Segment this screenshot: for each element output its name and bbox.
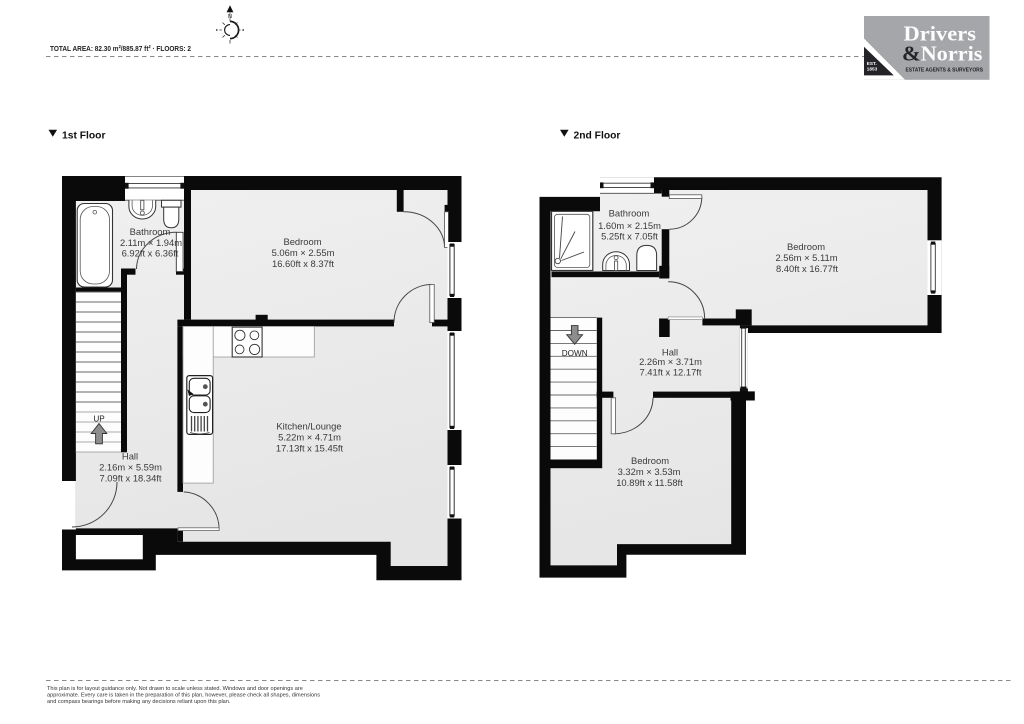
- svg-text:Kitchen/Lounge: Kitchen/Lounge: [276, 421, 341, 432]
- svg-text:5.25ft x 7.05ft: 5.25ft x 7.05ft: [601, 230, 658, 241]
- svg-text:6.92ft x 6.36ft: 6.92ft x 6.36ft: [122, 247, 179, 258]
- svg-text:1.60m × 2.15m: 1.60m × 2.15m: [598, 220, 661, 231]
- svg-text:approximate. Every care is tak: approximate. Every care is taken in the …: [47, 693, 320, 699]
- svg-text:17.13ft x 15.45ft: 17.13ft x 15.45ft: [276, 442, 344, 453]
- svg-text:Bathroom: Bathroom: [130, 226, 171, 237]
- svg-text:8.40ft x 16.77ft: 8.40ft x 16.77ft: [776, 263, 838, 274]
- svg-text:3.32m × 3.53m: 3.32m × 3.53m: [618, 466, 681, 477]
- svg-text:This plan is for layout guidan: This plan is for layout guidance only. N…: [47, 686, 303, 692]
- svg-text:16.60ft x 8.37ft: 16.60ft x 8.37ft: [272, 258, 334, 269]
- svg-text:2nd Floor: 2nd Floor: [574, 130, 621, 141]
- svg-text:N: N: [228, 14, 232, 20]
- svg-text:&Norris: &Norris: [902, 42, 983, 66]
- svg-text:7.41ft x 12.17ft: 7.41ft x 12.17ft: [639, 366, 701, 377]
- svg-text:2.11m × 1.94m: 2.11m × 1.94m: [120, 237, 182, 248]
- svg-text:TOTAL AREA: 82.30 m²/885.87 ft: TOTAL AREA: 82.30 m²/885.87 ft² · FLOORS…: [50, 44, 191, 53]
- svg-text:Bathroom: Bathroom: [609, 207, 650, 218]
- svg-text:and compass bearings before ma: and compass bearings before making any d…: [47, 699, 231, 705]
- svg-text:10.89ft x 11.58ft: 10.89ft x 11.58ft: [616, 477, 683, 488]
- svg-text:5.06m × 2.55m: 5.06m × 2.55m: [272, 247, 335, 258]
- svg-text:DOWN: DOWN: [562, 349, 588, 358]
- svg-text:ESTATE AGENTS & SURVEYORS: ESTATE AGENTS & SURVEYORS: [906, 67, 984, 73]
- svg-text:2.26m × 3.71m: 2.26m × 3.71m: [639, 356, 702, 367]
- svg-text:Bedroom: Bedroom: [631, 455, 669, 466]
- svg-text:Bedroom: Bedroom: [283, 236, 321, 247]
- svg-text:2.16m × 5.59m: 2.16m × 5.59m: [99, 462, 162, 473]
- svg-text:1853: 1853: [867, 67, 878, 72]
- svg-text:Bedroom: Bedroom: [787, 241, 825, 252]
- svg-text:5.22m × 4.71m: 5.22m × 4.71m: [278, 432, 341, 443]
- svg-text:Hall: Hall: [122, 451, 138, 462]
- svg-text:2.56m × 5.11m: 2.56m × 5.11m: [775, 252, 837, 263]
- svg-text:1st Floor: 1st Floor: [62, 130, 105, 141]
- svg-text:EST.: EST.: [867, 61, 877, 66]
- svg-text:7.09ft x 18.34ft: 7.09ft x 18.34ft: [99, 472, 161, 483]
- svg-text:UP: UP: [93, 415, 105, 424]
